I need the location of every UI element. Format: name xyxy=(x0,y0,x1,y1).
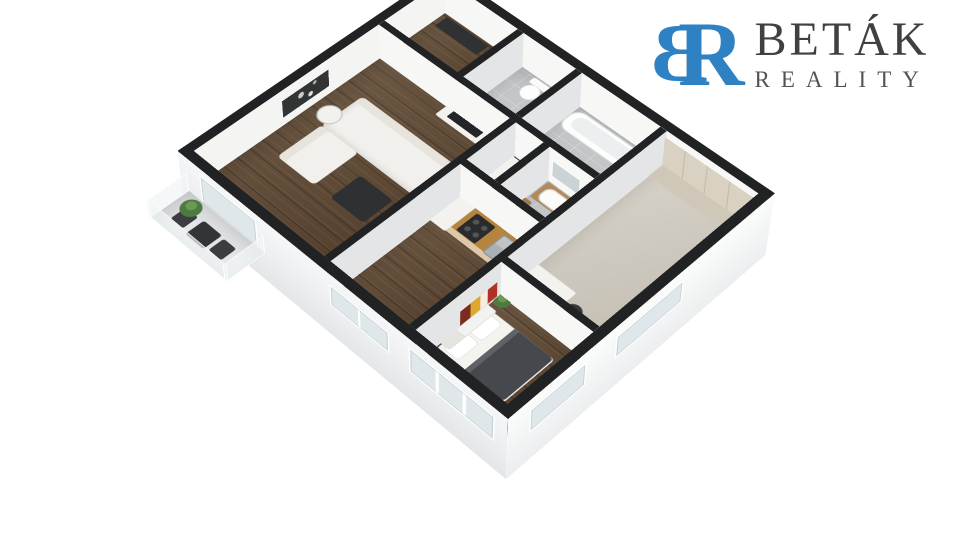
betak-reality-logo: B R BETÁK REALITY xyxy=(652,4,952,104)
canvas: B R BETÁK REALITY xyxy=(0,0,960,540)
brand-subtitle: REALITY xyxy=(754,67,929,93)
logo-text: BETÁK REALITY xyxy=(754,4,929,93)
brand-name: BETÁK xyxy=(754,16,929,64)
monogram-letter-b: B xyxy=(652,12,708,96)
logo-monogram-icon: B R xyxy=(652,4,744,104)
